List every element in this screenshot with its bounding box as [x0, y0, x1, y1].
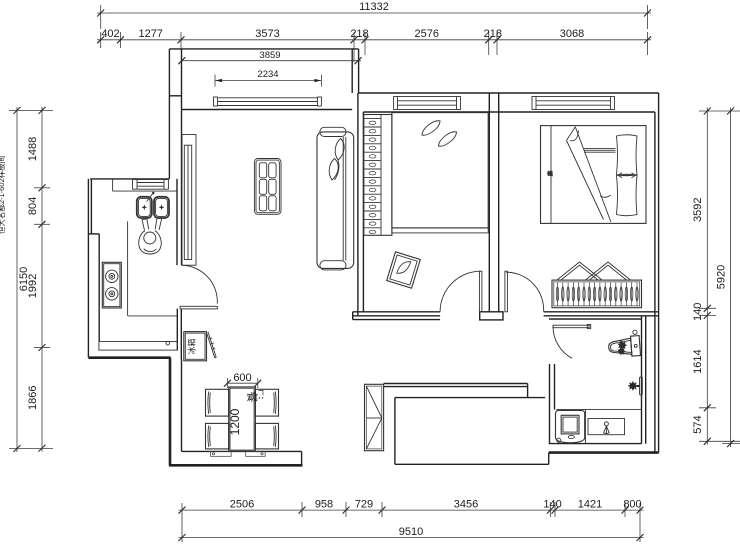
- svg-text:冰箱: 冰箱: [187, 339, 197, 355]
- svg-text:1488: 1488: [27, 137, 39, 161]
- svg-text:9510: 9510: [399, 526, 423, 538]
- svg-text:574: 574: [692, 415, 704, 433]
- svg-text:958: 958: [315, 499, 333, 511]
- svg-text:800: 800: [623, 499, 641, 511]
- svg-text:218: 218: [484, 28, 502, 40]
- svg-text:11332: 11332: [359, 1, 389, 13]
- svg-text:5920: 5920: [716, 265, 728, 289]
- svg-text:6150: 6150: [18, 267, 30, 291]
- svg-text:140: 140: [692, 303, 704, 321]
- svg-text:2506: 2506: [230, 499, 254, 511]
- svg-text:1614: 1614: [692, 349, 704, 373]
- svg-text:3573: 3573: [255, 28, 279, 40]
- svg-text:600: 600: [233, 372, 251, 384]
- svg-text:1421: 1421: [578, 499, 602, 511]
- svg-text:804: 804: [27, 197, 39, 215]
- svg-text:3859: 3859: [259, 50, 280, 61]
- svg-text:218: 218: [350, 28, 368, 40]
- svg-text:3068: 3068: [560, 28, 584, 40]
- svg-text:床: 床: [547, 171, 554, 176]
- svg-text:3456: 3456: [454, 499, 478, 511]
- svg-text:1277: 1277: [138, 28, 162, 40]
- svg-text:140: 140: [543, 499, 561, 511]
- svg-text:恒大名都2-1-602样板间: 恒大名都2-1-602样板间: [0, 156, 6, 234]
- svg-text:729: 729: [355, 499, 373, 511]
- svg-text:餐: 餐: [246, 392, 260, 403]
- svg-text:2234: 2234: [257, 69, 278, 80]
- svg-text:1866: 1866: [27, 386, 39, 410]
- svg-text:2576: 2576: [415, 28, 439, 40]
- svg-text:402: 402: [101, 28, 119, 40]
- svg-text:1200: 1200: [228, 408, 242, 435]
- svg-text:3592: 3592: [692, 197, 704, 221]
